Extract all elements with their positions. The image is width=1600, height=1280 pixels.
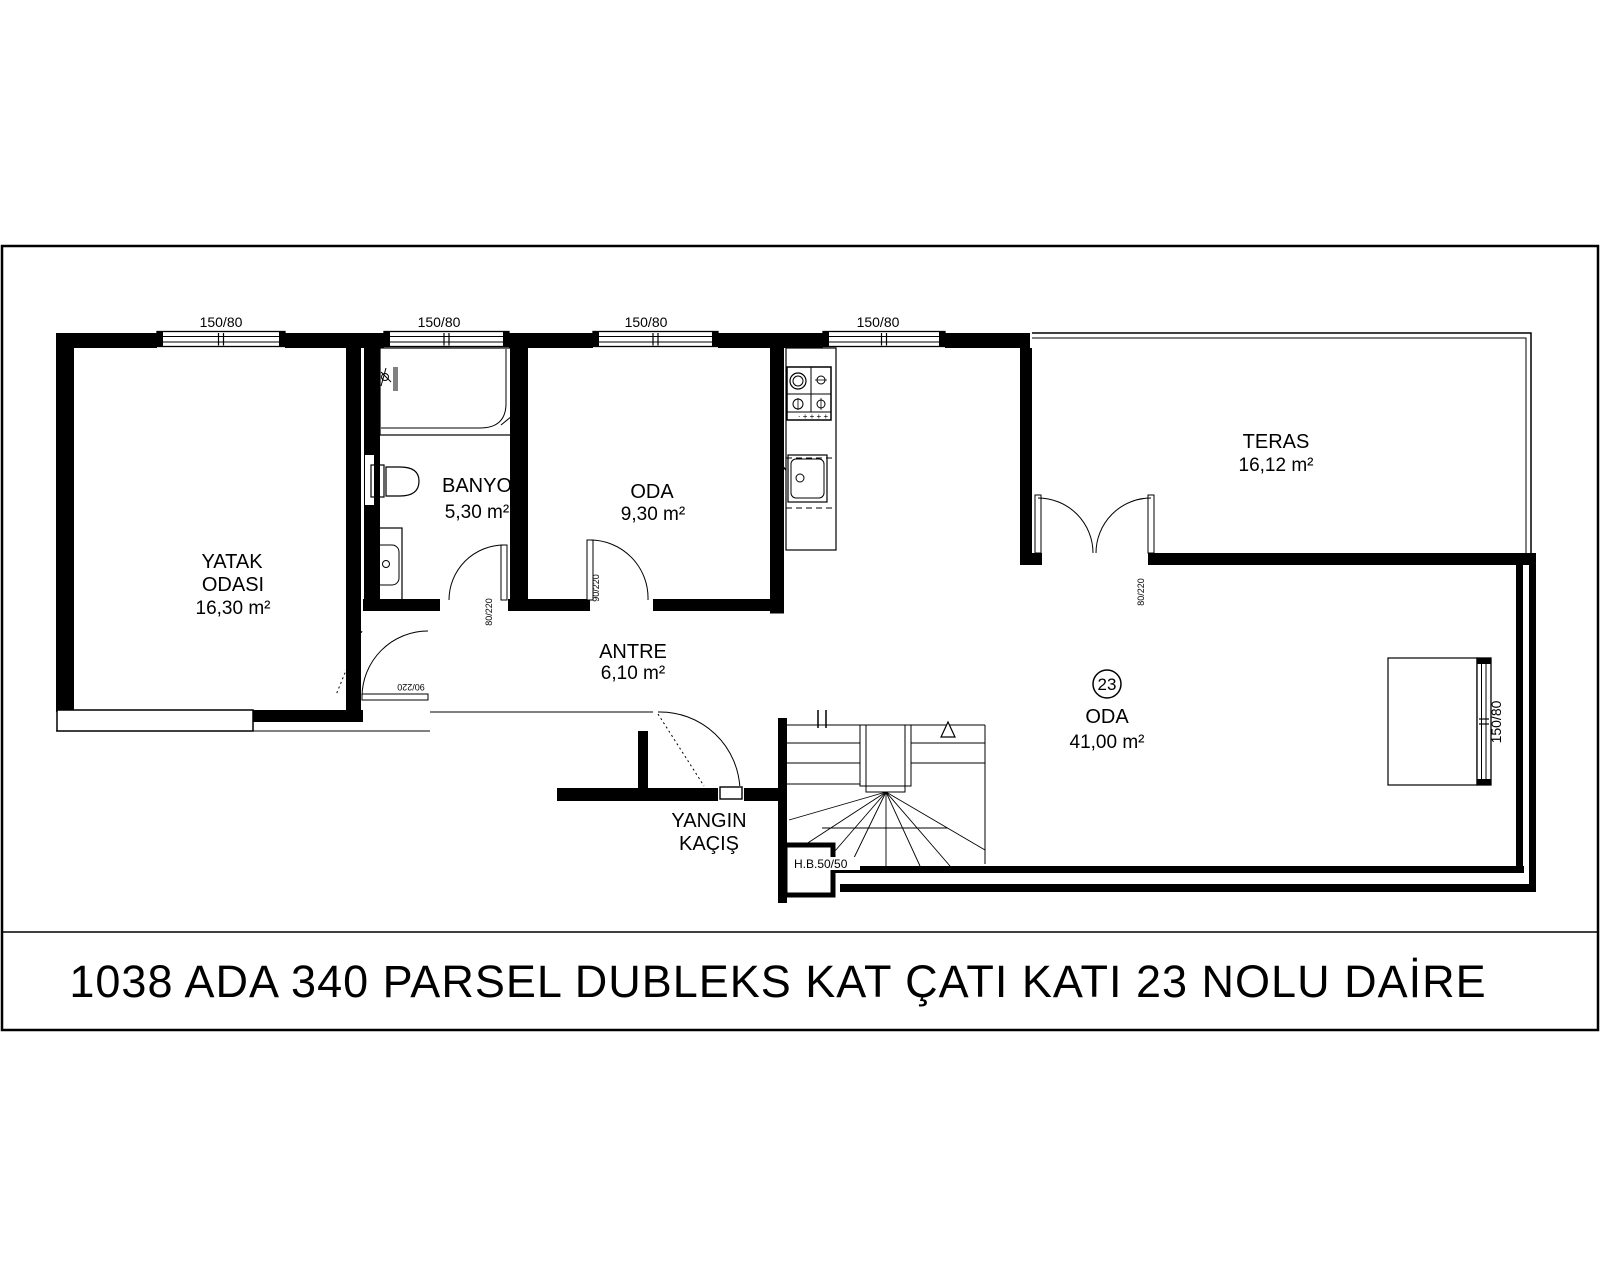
dormer-recess <box>1388 658 1477 785</box>
wall-east-outer <box>1529 553 1536 892</box>
oda-big-area: 41,00 m² <box>1070 732 1145 753</box>
stove-knobs: · + + + + <box>798 412 829 421</box>
wall-south-inner <box>833 866 1524 873</box>
stair-winder-line <box>789 792 886 820</box>
hb-label: H.B.50/50 <box>794 857 848 871</box>
window-4-label: 150/80 <box>857 314 900 330</box>
dormer-window: 150/80 <box>1388 658 1504 785</box>
room-label-teras: TERAS 16,12 m² <box>1239 431 1314 476</box>
stair-winder-line <box>886 792 920 866</box>
bedroom-door-label: 90/220 <box>397 682 425 692</box>
bedroom-name-line2: ODASI <box>202 574 264 596</box>
fire-door-dashed-swing <box>658 714 704 786</box>
oda-door: 90/220 <box>587 540 648 602</box>
wall-bedroom-south <box>253 710 363 722</box>
antre-name: ANTRE <box>599 641 667 663</box>
stair-winder-line <box>886 792 985 850</box>
window-4-cap-left <box>823 332 829 347</box>
window-4-frame <box>823 332 945 347</box>
terrace-door-label-left: 80/220 <box>1022 516 1032 544</box>
sink-drain <box>796 474 804 482</box>
wall-fire-south <box>557 788 787 801</box>
terrace-door-leaf-left <box>1035 495 1041 553</box>
teras-area: 16,12 m² <box>1239 455 1314 476</box>
bath-door-swing-arc <box>449 545 504 600</box>
window-3-cap-left <box>593 332 599 347</box>
toilet-bowl <box>386 467 419 496</box>
stove-burner-large <box>790 373 806 389</box>
stove-icon: · + + + + <box>787 367 831 421</box>
oda-big-name: ODA <box>1085 706 1129 728</box>
frame-border <box>2 246 1598 1030</box>
room-label-oda-big: 23 ODA 41,00 m² <box>1070 670 1145 753</box>
oda-small-name: ODA <box>630 481 674 503</box>
wall-east-inner <box>1516 556 1523 873</box>
window-right-cap-top <box>1477 658 1491 664</box>
terrace-door-leaf-right <box>1148 495 1154 553</box>
plan-title: 1038 ADA 340 PARSEL DUBLEKS KAT ÇATI KAT… <box>69 956 1486 1007</box>
teras-door-opening <box>1042 552 1148 566</box>
stair-well-outer <box>860 725 911 786</box>
bath-door-opening <box>440 598 508 612</box>
teras-name: TERAS <box>1243 431 1310 453</box>
window-right-label: 150/80 <box>1488 700 1504 743</box>
fire-escape-line1: YANGIN <box>671 810 746 832</box>
bath-door: 80/220 <box>449 545 507 626</box>
room-label-antre: ANTRE 6,10 m² <box>599 641 667 684</box>
window-2-label: 150/80 <box>418 314 461 330</box>
wall-south-outer <box>840 884 1536 892</box>
window-4-cap-right <box>939 332 945 347</box>
bathtub-inner <box>381 349 506 428</box>
wall-bedroom-south-thin <box>57 710 253 731</box>
room-label-bath: BANYO 5,30 m² <box>442 475 512 523</box>
bathtub-outline <box>380 348 512 435</box>
doors: 80/220 90/220 90/220 80/220 <box>336 495 1154 801</box>
window-2-cap-left <box>384 332 390 347</box>
walls <box>56 333 1536 903</box>
window-1-cap-right <box>279 332 285 347</box>
bath-door-label: 80/220 <box>484 598 494 626</box>
wall-bath-oda-south <box>363 599 770 611</box>
fire-escape-label: YANGIN KAÇIŞ <box>671 810 746 855</box>
oda-door-label: 90/220 <box>591 574 601 602</box>
bath-name: BANYO <box>442 475 512 497</box>
drawing-frame <box>2 246 1598 1030</box>
wall-fire-west <box>638 731 648 791</box>
room-label-oda-small: ODA 9,30 m² <box>621 481 685 525</box>
window-3-frame <box>593 332 718 347</box>
stair-winder-line <box>886 792 950 866</box>
sink-outline <box>788 455 827 502</box>
bathtub-icon <box>380 348 512 435</box>
window-1-label: 150/80 <box>200 314 243 330</box>
bathroom-fixtures <box>371 348 512 600</box>
unit-number: 23 <box>1098 675 1117 694</box>
stair-up-arrow-icon <box>941 722 955 737</box>
bedroom-door-leaf <box>362 694 428 700</box>
bedroom-name-line1: YATAK <box>201 551 263 573</box>
wall-bedroom-east <box>346 348 361 712</box>
stove-burner-large-inner <box>793 376 803 386</box>
window-right-cap-bottom <box>1477 779 1491 785</box>
window-3: 150/80 <box>593 314 718 348</box>
window-1-frame <box>157 332 285 347</box>
fire-escape-line2: KAÇIŞ <box>679 833 739 855</box>
terrace-door-label-right: 80/220 <box>1136 578 1146 606</box>
terrace-door-arc-right <box>1096 498 1151 553</box>
window-4: 150/80 <box>823 314 945 348</box>
wall-west <box>56 333 74 712</box>
window-2-frame <box>384 332 509 347</box>
washbasin-drain <box>383 561 390 568</box>
title-block: 1038 ADA 340 PARSEL DUBLEKS KAT ÇATI KAT… <box>69 956 1486 1007</box>
room-label-bedroom: YATAK ODASI 16,30 m² <box>196 551 271 619</box>
fire-door-leaf <box>720 787 742 799</box>
shower-bar-icon <box>393 367 398 391</box>
bath-door-leaf <box>501 545 507 600</box>
bathtub-faucet <box>381 368 391 386</box>
wall-kitchen-west <box>770 348 784 613</box>
floor-plan-drawing: 1038 ADA 340 PARSEL DUBLEKS KAT ÇATI KAT… <box>0 0 1600 1280</box>
terrace-door-arc-left <box>1038 498 1093 553</box>
window-2-cap-right <box>503 332 509 347</box>
oda-small-area: 9,30 m² <box>621 504 685 525</box>
window-3-label: 150/80 <box>625 314 668 330</box>
window-1: 150/80 <box>157 314 285 348</box>
terrace-double-door: 80/220 80/220 <box>1022 495 1154 606</box>
bedroom-area: 16,30 m² <box>196 598 271 619</box>
bath-area: 5,30 m² <box>445 502 509 523</box>
fire-escape-door <box>658 712 744 801</box>
stair-winder-line <box>800 792 886 848</box>
stair-well-inner <box>866 725 905 792</box>
wall-bath-east <box>510 348 528 610</box>
stair-winder-line <box>850 792 886 866</box>
window-1-cap-left <box>157 332 163 347</box>
floor-plan-page: 1038 ADA 340 PARSEL DUBLEKS KAT ÇATI KAT… <box>0 0 1600 1280</box>
window-2: 150/80 <box>384 314 509 348</box>
bathtub-faucet-head <box>382 374 389 381</box>
window-3-cap-right <box>712 332 718 347</box>
antre-area: 6,10 m² <box>601 663 665 684</box>
